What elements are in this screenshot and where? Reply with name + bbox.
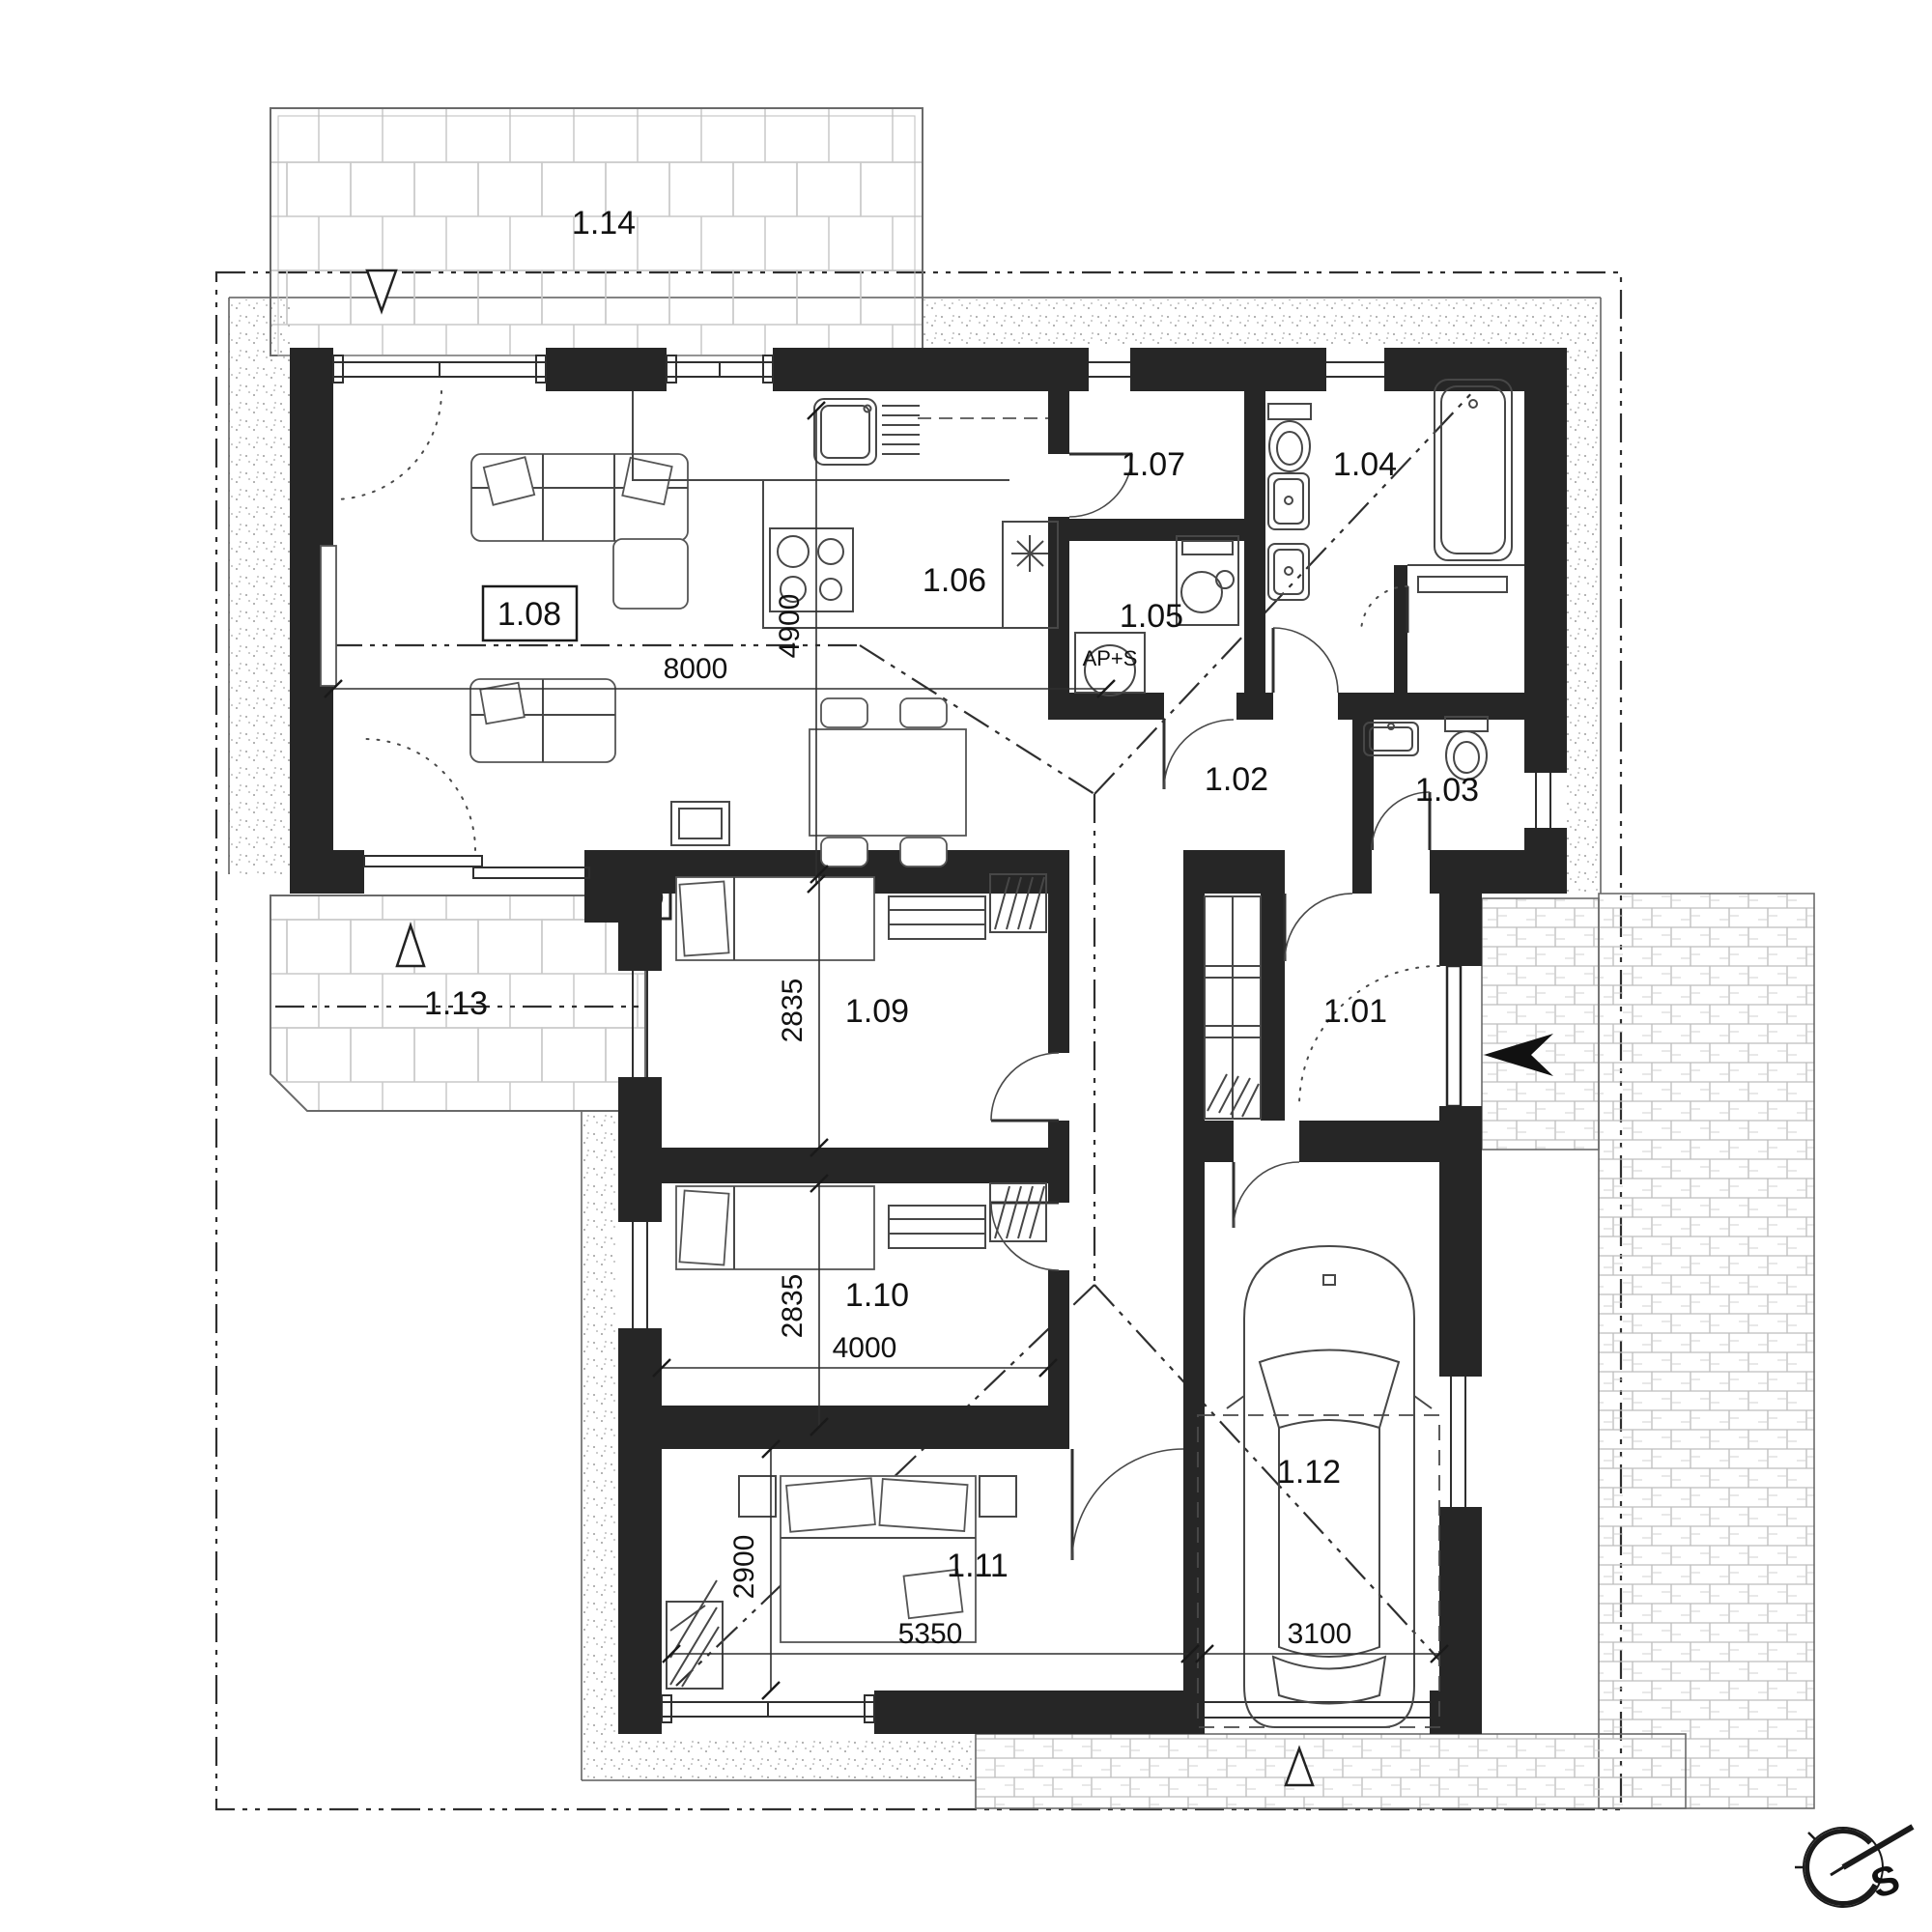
room-label-bedroom3: 1.11 [947, 1548, 1009, 1584]
window-living-top [333, 355, 546, 383]
bathtub [1435, 380, 1512, 560]
floor-plan-page: AP+S [0, 0, 1932, 1932]
sofa-small [470, 679, 615, 762]
room-label-terrace-left: 1.13 [424, 985, 488, 1022]
floor-plan-drawing: AP+S [0, 0, 1932, 1932]
svg-text:8000: 8000 [664, 653, 728, 685]
door-garage-entry [1234, 1162, 1299, 1228]
door-bathroom [1273, 628, 1338, 693]
wc-fixtures [1364, 717, 1488, 780]
side-table [671, 802, 729, 845]
room-label-kitchen: 1.06 [923, 562, 986, 599]
gravel-strip-bottom [618, 1739, 976, 1780]
bedroom2-furniture [676, 1183, 1046, 1269]
bed-single-1 [676, 877, 874, 960]
walkway-right-paving [1599, 894, 1814, 1808]
room-label-terrace-top: 1.14 [572, 205, 636, 241]
wardrobe-3 [667, 1580, 723, 1689]
window-kitchen-top [667, 355, 773, 383]
room-label-utility: 1.05 [1120, 598, 1183, 635]
dim-bedroom3-depth: 2900 [728, 1440, 780, 1699]
compass-label: S [1865, 1856, 1905, 1907]
window-swing-dotted [333, 391, 441, 499]
toilet-wc [1445, 717, 1488, 780]
toilet-bathroom [1268, 404, 1311, 471]
tv [321, 546, 336, 686]
room-label-living-box: 1.08 [483, 586, 577, 640]
door-main-entrance [1299, 966, 1461, 1106]
svg-text:2900: 2900 [728, 1535, 760, 1600]
door-bedroom3 [1072, 1449, 1183, 1560]
window-bedroom2-left [633, 1222, 647, 1328]
window-bathroom-top [1326, 362, 1384, 377]
door-entry-hall [1285, 894, 1352, 961]
room-label-living: 1.08 [497, 596, 561, 633]
kitchen-sink [814, 399, 920, 465]
gravel-strip-right [1567, 348, 1601, 894]
room-label-hall: 1.02 [1205, 761, 1268, 798]
window-bedroom3-bottom [662, 1695, 874, 1722]
svg-text:5350: 5350 [898, 1618, 963, 1650]
svg-text:2835: 2835 [777, 979, 809, 1043]
dining-table [810, 698, 966, 867]
shower [1407, 565, 1524, 592]
gravel-strip-wing-left [582, 1111, 618, 1780]
dim-bedroom2-width: 4000 [653, 1332, 1057, 1377]
bed-single-2 [676, 1186, 874, 1269]
gravel-strip-top [923, 299, 1601, 348]
living-room-furniture [321, 454, 966, 867]
sink-double-1 [1268, 473, 1309, 529]
appliance-label: AP+S [1083, 646, 1138, 670]
svg-text:2835: 2835 [777, 1274, 809, 1339]
room-label-wc: 1.03 [1415, 772, 1479, 809]
bedroom1-furniture [676, 874, 1046, 960]
nightstand-2 [980, 1476, 1016, 1517]
room-label-bedroom1: 1.09 [845, 993, 909, 1030]
gravel-strip-left [229, 299, 290, 874]
room-label-bedroom2: 1.10 [845, 1277, 909, 1314]
shelf-2 [889, 1206, 985, 1248]
compass: S [1795, 1827, 1913, 1907]
room-label-pantry: 1.07 [1122, 446, 1185, 483]
room-label-entry: 1.01 [1323, 993, 1387, 1030]
door-bedroom1 [991, 1053, 1059, 1121]
svg-text:4000: 4000 [833, 1332, 897, 1364]
room-label-garage: 1.12 [1277, 1454, 1341, 1491]
svg-text:4900: 4900 [774, 594, 806, 659]
shelf-1 [889, 896, 985, 939]
hall-closet [1205, 896, 1261, 1119]
room-label-bathroom: 1.04 [1333, 446, 1397, 483]
entry-landing-paving [1482, 898, 1599, 1150]
window-garage-right [1451, 1377, 1465, 1507]
kitchen-fixtures [633, 391, 1058, 628]
dim-bedroom3-width: 5350 [663, 1618, 1199, 1662]
garage-door [1205, 1702, 1430, 1718]
window-wc-right [1536, 773, 1550, 828]
svg-text:3100: 3100 [1288, 1618, 1352, 1650]
washing-machine [1177, 536, 1238, 625]
sink-double-2 [1268, 544, 1309, 600]
driveway-paving [976, 1734, 1686, 1808]
dim-living-width: 8000 [325, 653, 1115, 697]
window-pantry-top [1089, 362, 1130, 377]
